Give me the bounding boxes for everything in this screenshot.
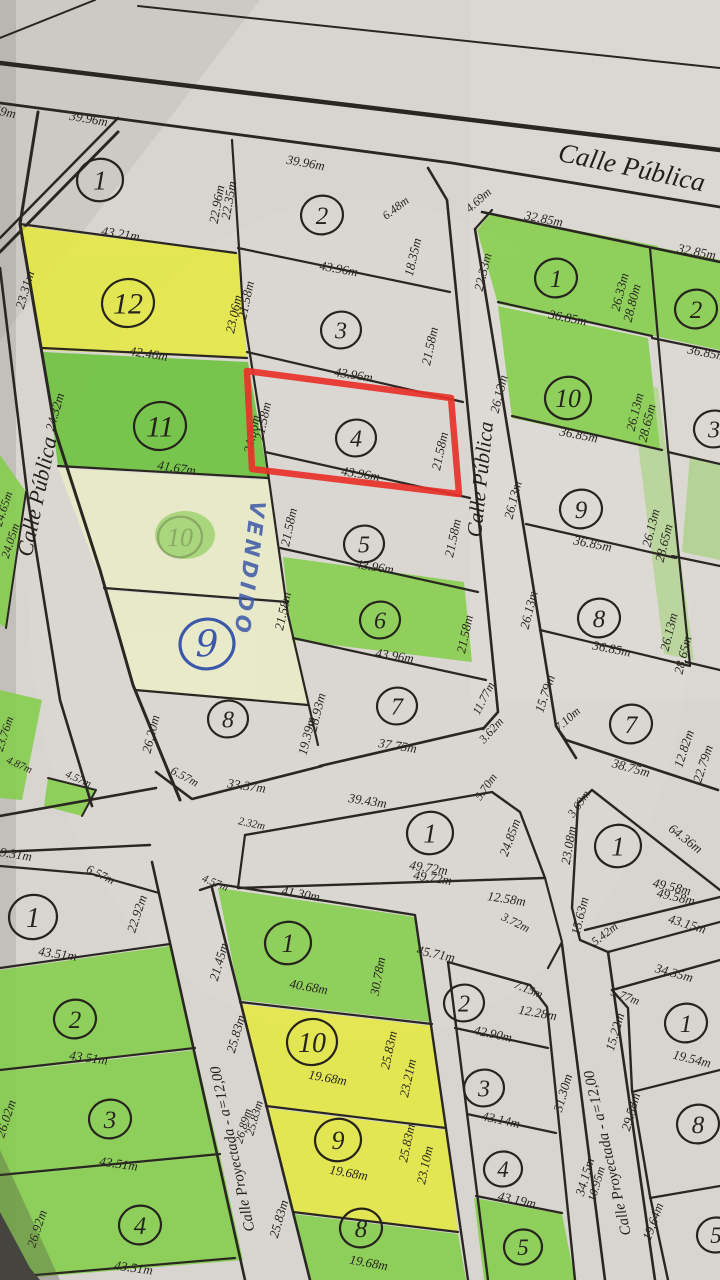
lot-number-text: 8: [593, 606, 606, 633]
lot-number-text: 1: [93, 165, 107, 195]
lot-number-text: 8: [222, 707, 234, 733]
lot-number-text: 8: [355, 1216, 368, 1243]
lot-number-text: 4: [350, 426, 362, 452]
lot-number-text: 2: [458, 991, 470, 1017]
lot-number-text: 8: [692, 1112, 705, 1139]
cadastral-map-photo: Calle PúblicaCalle PúblicaCalle PúblicaC…: [0, 0, 720, 1280]
lot-number-text: 2: [316, 203, 329, 230]
lot-number-text: 10: [298, 1028, 326, 1059]
lot-number-text: 1: [423, 818, 437, 848]
lot-number-text: 6: [374, 608, 386, 634]
lot-number-text: 1: [26, 903, 40, 934]
lot-number-text: 3: [103, 1107, 117, 1134]
lot-number-text: 3: [477, 1076, 490, 1102]
lot-number-text: 5: [517, 1235, 529, 1260]
lot-number-text: 7: [625, 712, 639, 739]
lot-number-text: 9: [332, 1126, 345, 1155]
lot-number-text: 11: [146, 411, 174, 444]
lot-number-text: 9: [196, 625, 219, 666]
lot-number-text: 1: [611, 831, 625, 861]
lot-number-text: 12: [113, 288, 143, 321]
lot-number-text: 2: [69, 1007, 82, 1034]
lot-number-text: 7: [391, 694, 404, 720]
lot-number-text: 3: [707, 417, 720, 443]
lot-number-text: 9: [575, 497, 588, 524]
lot-number-text: 5: [710, 1223, 720, 1248]
lot-number-text: 5: [358, 532, 370, 558]
highlight-lot-2-right: [645, 246, 720, 350]
parcel-map: Calle PúblicaCalle PúblicaCalle PúblicaC…: [0, 0, 720, 1280]
lot-number-text: 2: [690, 297, 703, 324]
lot-number-text: 3: [334, 318, 347, 344]
lot-number-text: 1: [550, 266, 563, 293]
lot-number-text: 4: [497, 1157, 509, 1182]
lot-number-text: 10: [167, 523, 193, 552]
lot-number-text: 10: [555, 384, 581, 413]
lot-number-text: 4: [134, 1213, 147, 1240]
lot-number-text: 1: [282, 929, 295, 958]
lot-number-text: 1: [680, 1011, 693, 1038]
